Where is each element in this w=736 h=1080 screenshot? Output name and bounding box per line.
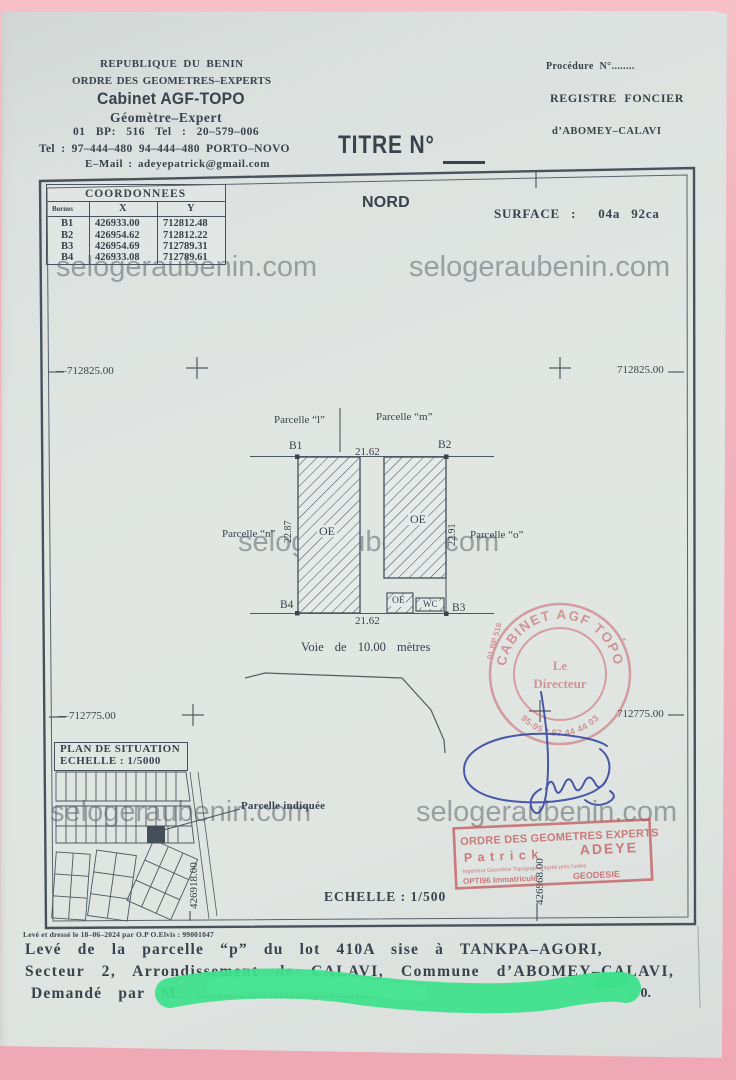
svg-text:Directeur: Directeur [533, 676, 586, 691]
svg-text:Le: Le [553, 658, 568, 673]
svg-text:ADEYE: ADEYE [579, 839, 638, 858]
svg-text:GEODESIE: GEODESIE [573, 869, 620, 881]
svg-text:P a t r i c k: P a t r i c k [464, 848, 540, 865]
